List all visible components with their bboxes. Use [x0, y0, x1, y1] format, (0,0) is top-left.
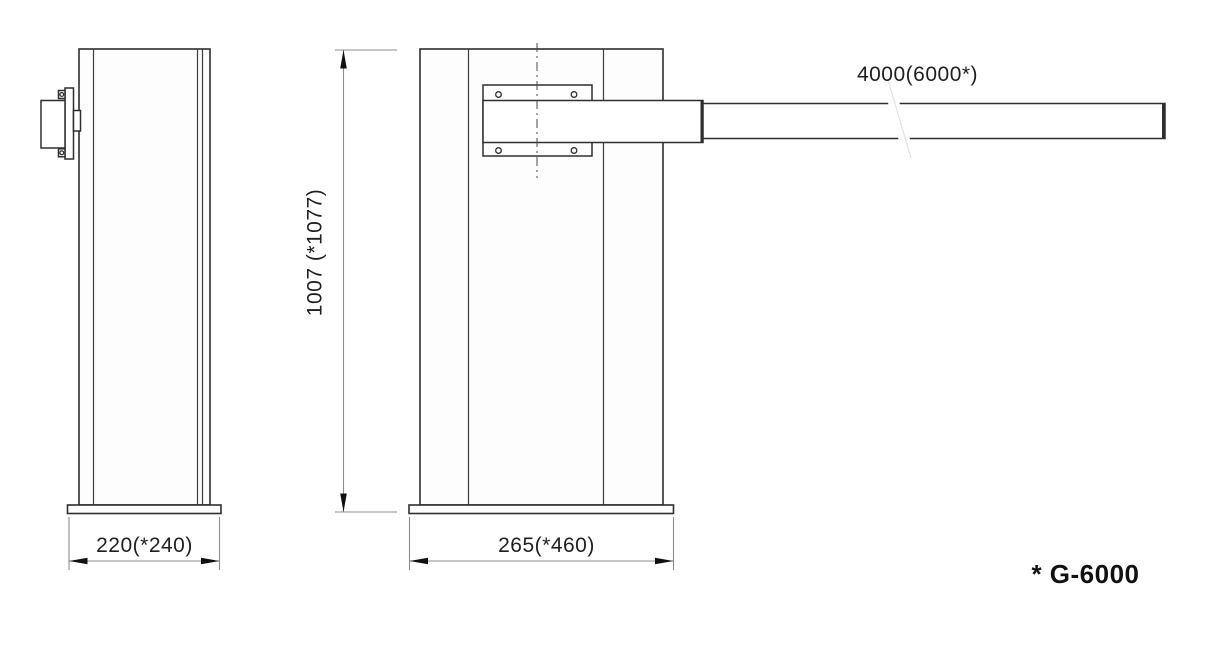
front-view — [409, 43, 1165, 514]
height-dimension: 1007 (*1077) — [304, 50, 398, 512]
model-label: * G-6000 — [1031, 559, 1139, 589]
dimension-arrow-down — [340, 494, 347, 513]
bolt-hole-bottom-right — [571, 148, 577, 154]
side-post-body — [79, 49, 210, 505]
side-hub-block — [74, 111, 81, 132]
arm-bracket-section — [483, 101, 703, 143]
side-arm-stub — [41, 101, 65, 149]
side-mount-bracket — [41, 88, 81, 159]
side-width-dimension: 220(*240) — [69, 517, 220, 570]
dimension-arrow-right — [655, 558, 674, 565]
dimension-arrow-left — [69, 558, 88, 565]
barrier-gate-dimension-drawing: 1007 (*1077) — [0, 0, 1214, 645]
side-bracket-bolt-bottom — [60, 151, 64, 155]
dimension-arrow-up — [340, 50, 347, 69]
arm-length-label: 4000(6000*) — [857, 63, 978, 86]
bolt-hole-bottom-left — [496, 148, 502, 154]
front-width-dimension: 265(*460) — [410, 517, 674, 570]
side-bracket-plate — [65, 88, 74, 159]
front-width-label: 265(*460) — [498, 534, 595, 557]
side-width-label: 220(*240) — [96, 534, 193, 557]
side-bracket-bolt-top — [60, 93, 64, 97]
bolt-hole-top-right — [571, 92, 577, 98]
technical-drawing-page: 1007 (*1077) — [0, 0, 1214, 645]
dimension-arrow-right — [201, 558, 220, 565]
front-base-plate — [409, 505, 674, 514]
side-base-plate — [68, 505, 222, 514]
dimension-arrow-left — [410, 558, 429, 565]
arm-boom-section — [703, 104, 1165, 139]
bolt-hole-top-left — [496, 92, 502, 98]
side-view — [41, 49, 221, 514]
height-dimension-label: 1007 (*1077) — [304, 189, 327, 316]
